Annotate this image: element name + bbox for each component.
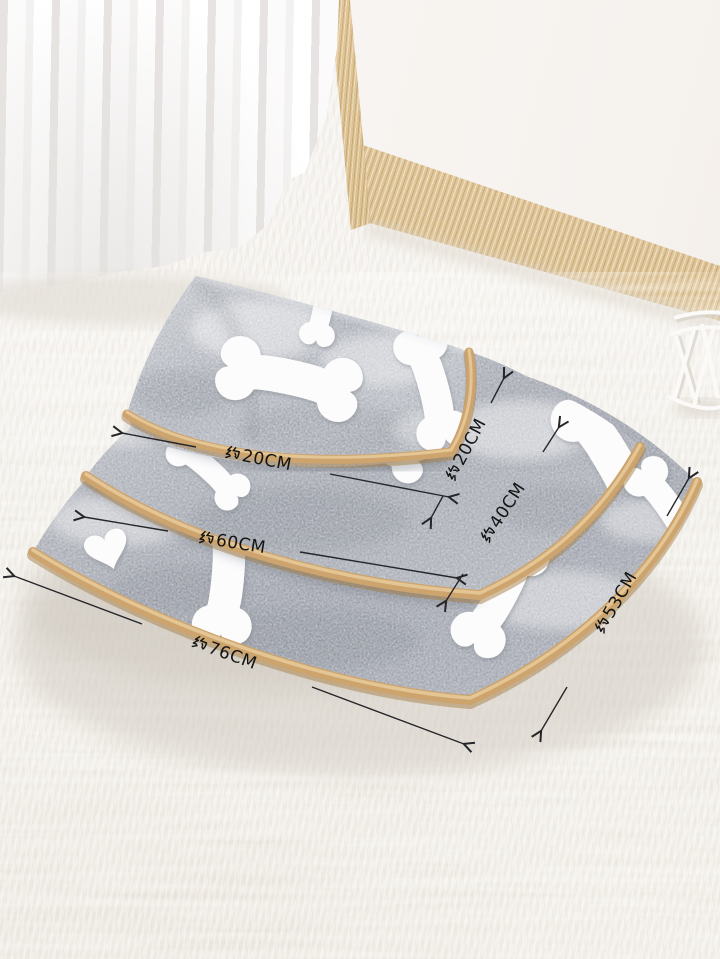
dim-line-width-medium [84,517,457,578]
product-photo: 20CM 20CM 40CM 60CM 76CM 53CM [0,0,720,959]
approx-symbol-icon [197,530,215,548]
approx-symbol-icon [223,445,242,464]
dimension-lines [0,0,720,959]
